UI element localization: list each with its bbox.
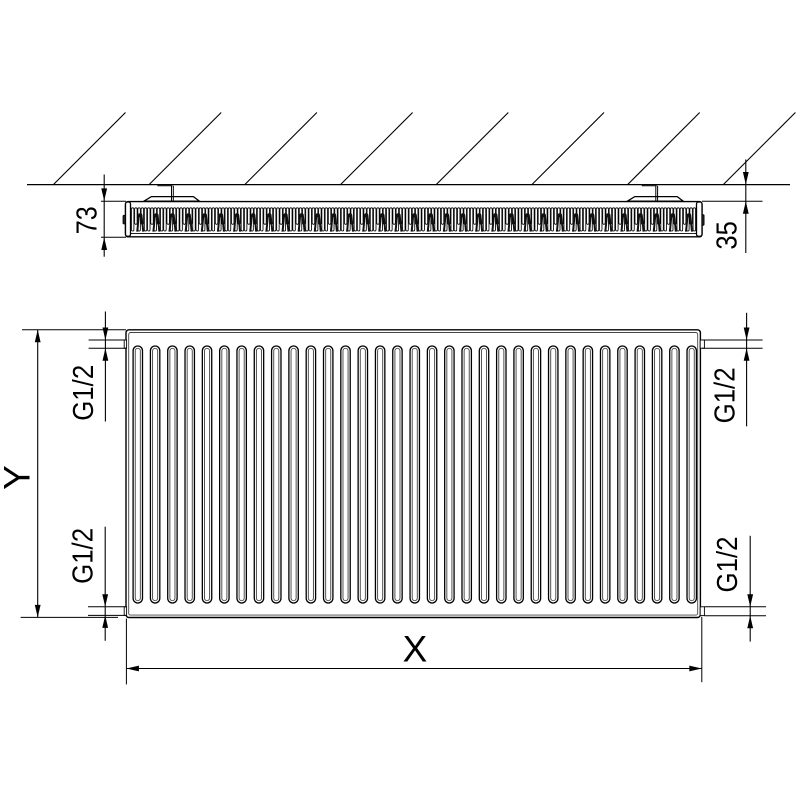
svg-text:G1/2: G1/2 <box>68 365 100 421</box>
svg-text:X: X <box>403 629 428 670</box>
svg-text:G1/2: G1/2 <box>67 528 99 584</box>
svg-text:G1/2: G1/2 <box>710 367 742 423</box>
svg-text:35: 35 <box>712 221 744 250</box>
svg-text:73: 73 <box>72 206 104 234</box>
svg-text:G1/2: G1/2 <box>712 537 744 593</box>
svg-text:Y: Y <box>0 465 38 490</box>
